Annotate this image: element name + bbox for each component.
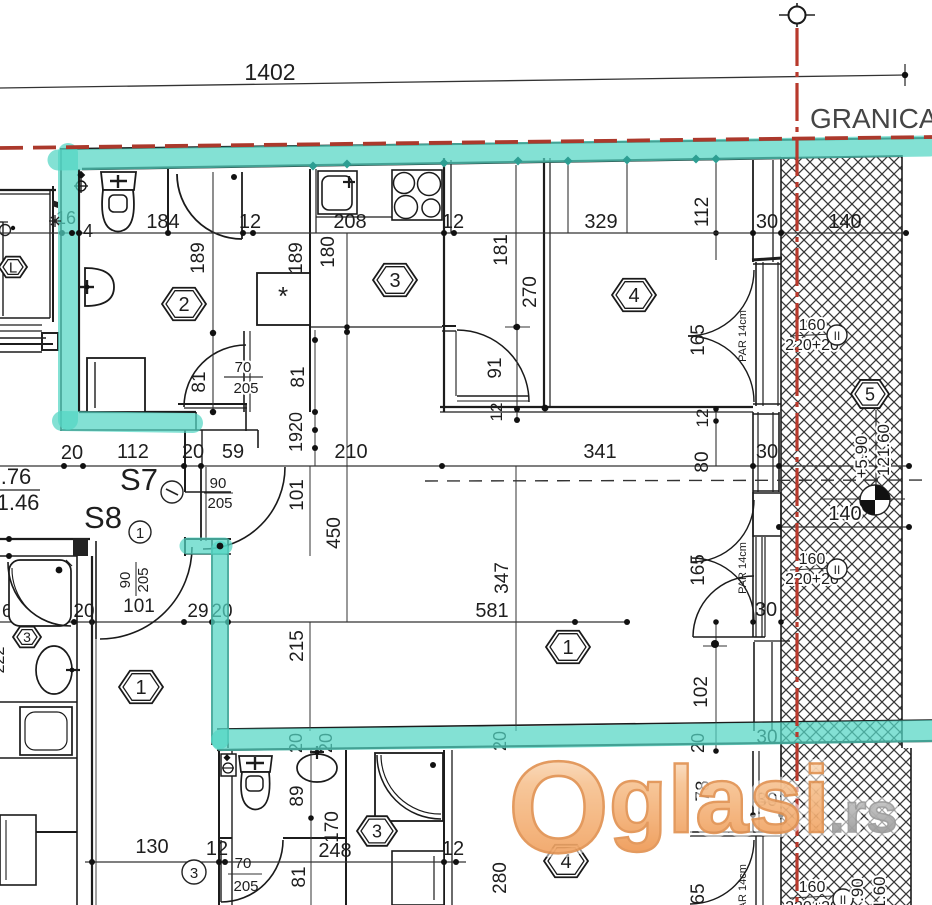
svg-text:12: 12 [487,403,506,422]
svg-text:270: 270 [520,276,541,308]
svg-text:.76: .76 [1,464,32,489]
svg-text:170: 170 [322,811,343,843]
svg-text:205: 205 [135,567,152,592]
svg-text:222: 222 [0,647,8,674]
svg-text:140: 140 [828,503,861,525]
svg-text:101: 101 [123,596,155,617]
svg-text:*: * [278,281,288,311]
svg-text:248: 248 [318,840,351,862]
svg-text:1920: 1920 [286,412,306,452]
svg-text:3: 3 [23,629,31,645]
svg-text:1402: 1402 [244,59,295,85]
svg-text:PAR 14cm: PAR 14cm [737,864,749,905]
svg-text:189: 189 [188,242,209,274]
svg-text:215: 215 [287,630,308,662]
svg-text:189: 189 [286,242,307,274]
svg-text:S8: S8 [84,500,122,535]
svg-text:181: 181 [491,234,512,266]
svg-text:12: 12 [693,409,712,428]
svg-text:12: 12 [239,211,261,233]
svg-text:5: 5 [865,384,875,404]
svg-text:1: 1 [135,677,146,699]
svg-text:3: 3 [372,821,382,841]
svg-text:208: 208 [333,211,366,233]
svg-text:81: 81 [288,366,309,387]
svg-text:30: 30 [756,441,778,463]
svg-text:180: 180 [318,236,339,268]
svg-text:165: 165 [688,324,709,356]
svg-text:140: 140 [828,211,861,233]
svg-text:12: 12 [442,838,464,860]
svg-text:341: 341 [583,441,616,463]
svg-text:450: 450 [324,517,345,549]
svg-text:20: 20 [182,441,204,463]
svg-text:1: 1 [136,525,144,542]
svg-text:91: 91 [485,357,506,378]
svg-text:glasi: glasi [609,747,831,853]
svg-text:II: II [834,563,841,577]
svg-text:S7: S7 [120,462,158,497]
svg-text:L: L [9,259,17,276]
svg-text:121.60: 121.60 [874,424,893,476]
svg-text:80: 80 [692,451,713,472]
svg-text:O: O [508,734,609,880]
svg-text:70: 70 [235,855,252,872]
svg-text:130: 130 [135,836,168,858]
svg-text:101: 101 [287,479,308,511]
svg-text:1.46: 1.46 [0,490,39,515]
svg-text:30: 30 [755,599,777,621]
svg-text:70: 70 [235,359,252,376]
svg-text:.90: .90 [848,878,867,902]
svg-text:20: 20 [61,442,83,464]
svg-text:2: 2 [178,294,189,316]
svg-text:PAR 14cm: PAR 14cm [737,310,749,362]
svg-text:112: 112 [117,441,149,463]
svg-text:65: 65 [688,883,709,904]
svg-text:+5.90: +5.90 [852,435,871,478]
svg-text:165: 165 [688,554,709,586]
svg-text:160: 160 [799,317,826,334]
svg-text:II: II [834,329,841,343]
svg-text:3: 3 [190,865,198,882]
svg-text:329: 329 [584,211,617,233]
svg-text:3: 3 [389,270,400,292]
svg-text:90: 90 [117,572,134,589]
svg-text:89: 89 [287,785,308,806]
svg-text:59: 59 [222,441,244,463]
svg-text:81: 81 [189,371,210,392]
svg-text:4: 4 [628,285,639,307]
svg-text:30: 30 [756,211,778,233]
svg-text:205: 205 [233,878,258,895]
svg-text:1.60: 1.60 [870,876,889,905]
svg-text:210: 210 [334,441,367,463]
svg-text:81: 81 [289,866,310,887]
svg-text:II: II [840,893,847,905]
svg-text:347: 347 [492,562,513,594]
svg-text:112: 112 [692,197,713,227]
svg-text:1: 1 [562,637,573,659]
svg-text:4: 4 [83,221,93,241]
svg-text:581: 581 [475,600,508,622]
svg-text:90: 90 [210,475,227,492]
svg-text:205: 205 [233,380,258,397]
svg-text:102: 102 [691,676,712,708]
svg-text:205: 205 [207,495,232,512]
svg-text:160: 160 [799,879,826,896]
svg-text:184: 184 [146,211,179,233]
svg-text:.rs: .rs [829,781,898,844]
svg-text:12: 12 [206,838,228,860]
svg-text:160: 160 [799,551,826,568]
svg-text:GRANICA: GRANICA [810,103,932,134]
svg-text:20: 20 [0,543,3,559]
svg-text:220+20: 220+20 [785,899,839,905]
svg-text:12: 12 [442,211,464,233]
svg-text:PAR 14cm: PAR 14cm [737,542,749,594]
svg-text:29: 29 [187,601,208,622]
